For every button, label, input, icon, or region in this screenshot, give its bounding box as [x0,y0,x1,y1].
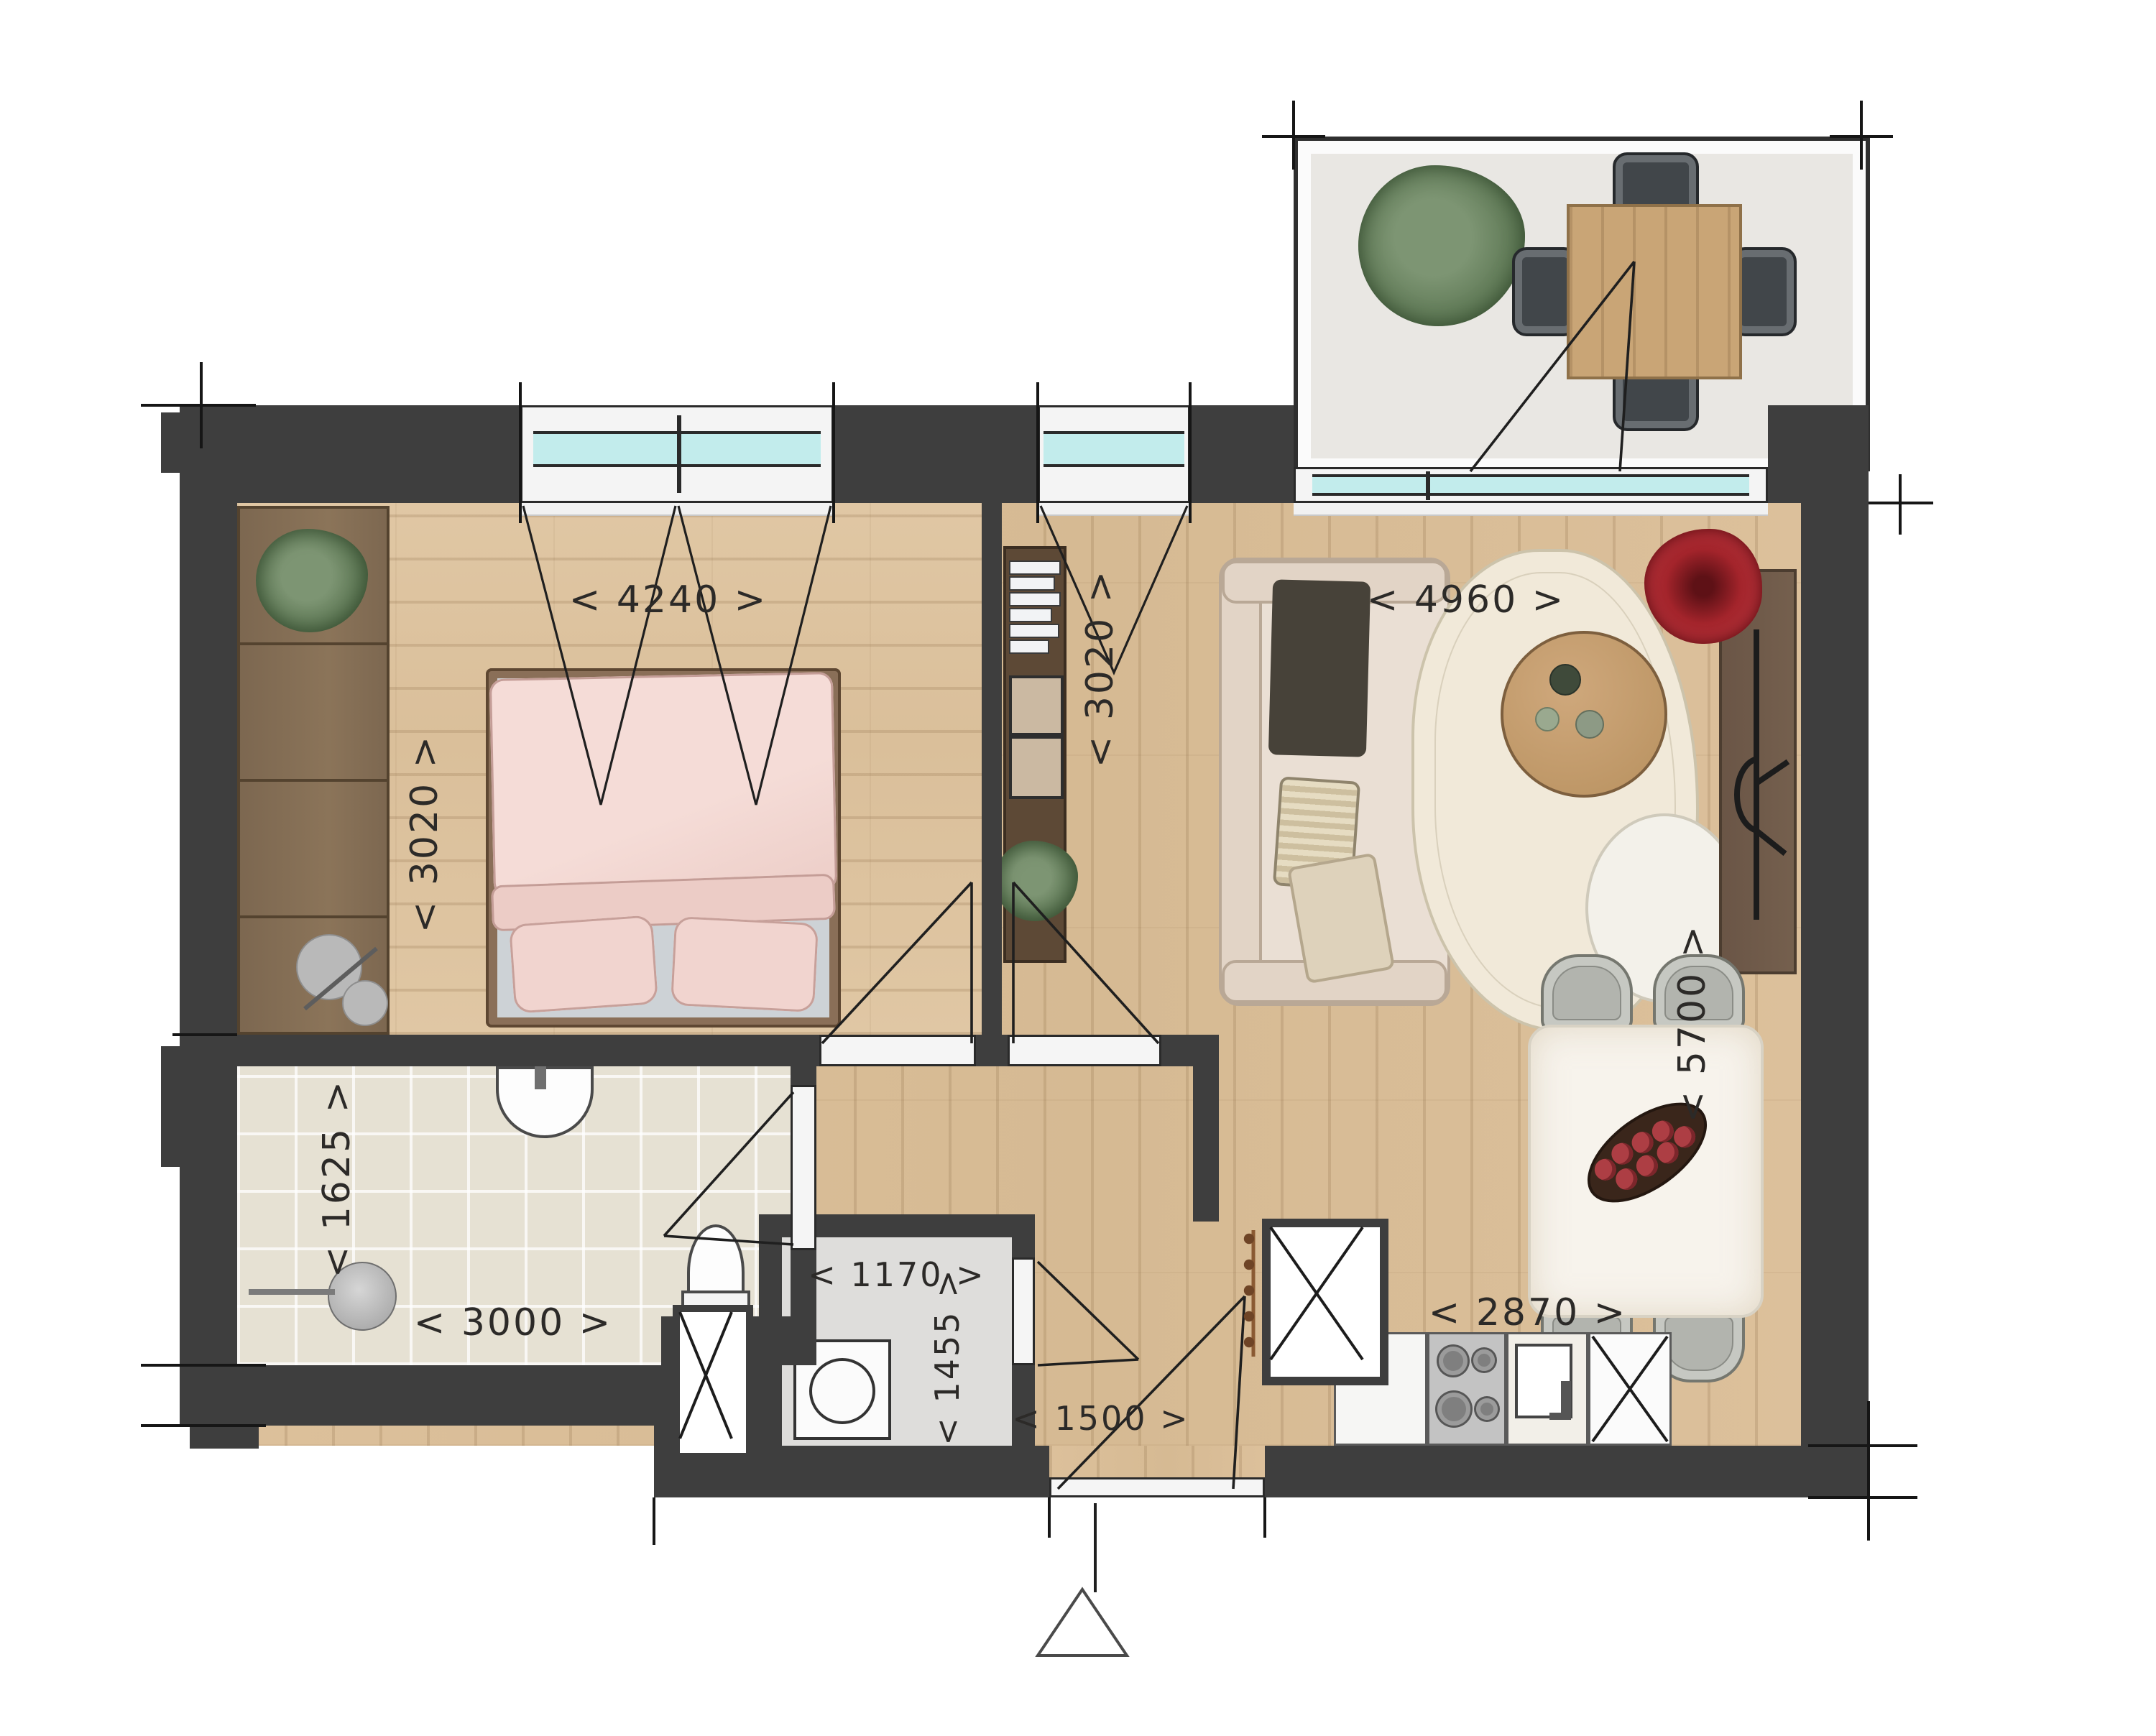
dim-bathroom-width: < 3000 > [414,1302,613,1345]
dim-bedroom-depth: < 3020 > [404,734,447,933]
bedroom-door-swing [822,882,972,1043]
dim-living-depth: < 5700 > [1672,924,1715,1123]
dim-kitchen-width: < 2870 > [1429,1292,1628,1335]
bedroom-window-swing [523,506,831,805]
living-door-swing [1013,882,1158,1043]
dim-bathroom-depth: < 1625 > [316,1079,359,1278]
dim-flex-depth: < 3020 > [1079,569,1123,768]
storage-door-swing [1038,1262,1138,1365]
dim-bedroom-width: < 4240 > [569,579,768,622]
stool-stick [305,948,377,1009]
dim-living-width: < 4960 > [1367,579,1566,622]
entrance-marker-triangle [1038,1589,1127,1656]
balcony-door-swing [1470,262,1634,471]
dim-entrance-width: < 1500 > [1012,1401,1189,1439]
floor-plan: < 4240 > < 3020 > < 4960 > < 3020 > < 57… [0,0,2156,1736]
front-door-swing [1058,1296,1245,1489]
tv-icon [1737,629,1788,920]
coat-rack-icon [1244,1230,1254,1357]
dim-storage-depth: < 1455 > [930,1268,967,1445]
bathroom-door-swing [664,1092,793,1245]
